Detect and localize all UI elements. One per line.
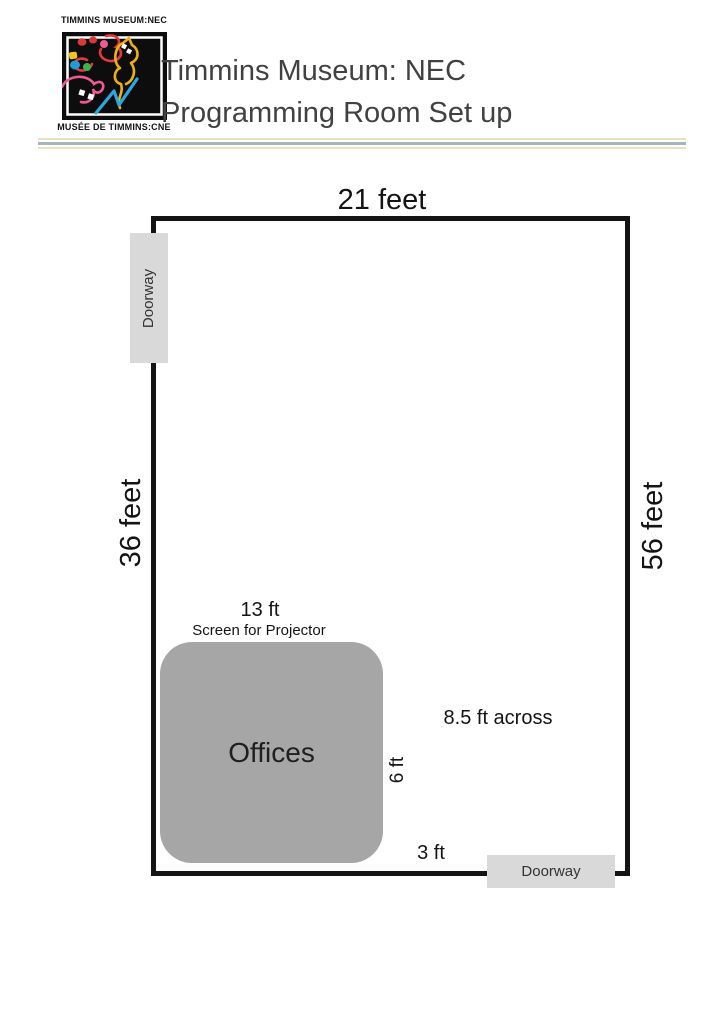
clearance-below-label: 3 ft [401,842,461,865]
page-title-line2: Programming Room Set up [161,92,512,134]
doorway-left-label: Doorway [141,268,158,327]
clearance-across-label: 8.5 ft across [418,707,578,730]
offices-side-height-label: 6 ft [385,740,411,800]
page-title-line1: Timmins Museum: NEC [161,50,512,92]
offices-label: Offices [228,737,315,769]
document-page: TIMMINS MUSEUM:NEC MUSÉE DE TIMMINS:CNE … [0,0,724,1024]
logo-top-text: TIMMINS MUSEUM:NEC [58,15,170,25]
offices-block: Offices [160,642,383,863]
divider-line-yellow-bottom [38,147,686,149]
room-right-height-label: 56 feet [638,466,668,586]
doorway-left-wall: Doorway [130,233,168,363]
screen-width-label: 13 ft [200,599,320,622]
header-divider [38,138,686,149]
screen-for-projector-label: Screen for Projector [159,622,359,639]
logo-bottom-text: MUSÉE DE TIMMINS:CNE [54,122,174,132]
doorway-bottom-label: Doorway [521,863,580,880]
page-title: Timmins Museum: NEC Programming Room Set… [161,50,512,134]
room-width-label: 21 feet [302,184,462,217]
museum-logo-icon [62,32,167,120]
doorway-bottom-wall: Doorway [487,855,615,888]
room-left-height-label: 36 feet [116,463,146,583]
